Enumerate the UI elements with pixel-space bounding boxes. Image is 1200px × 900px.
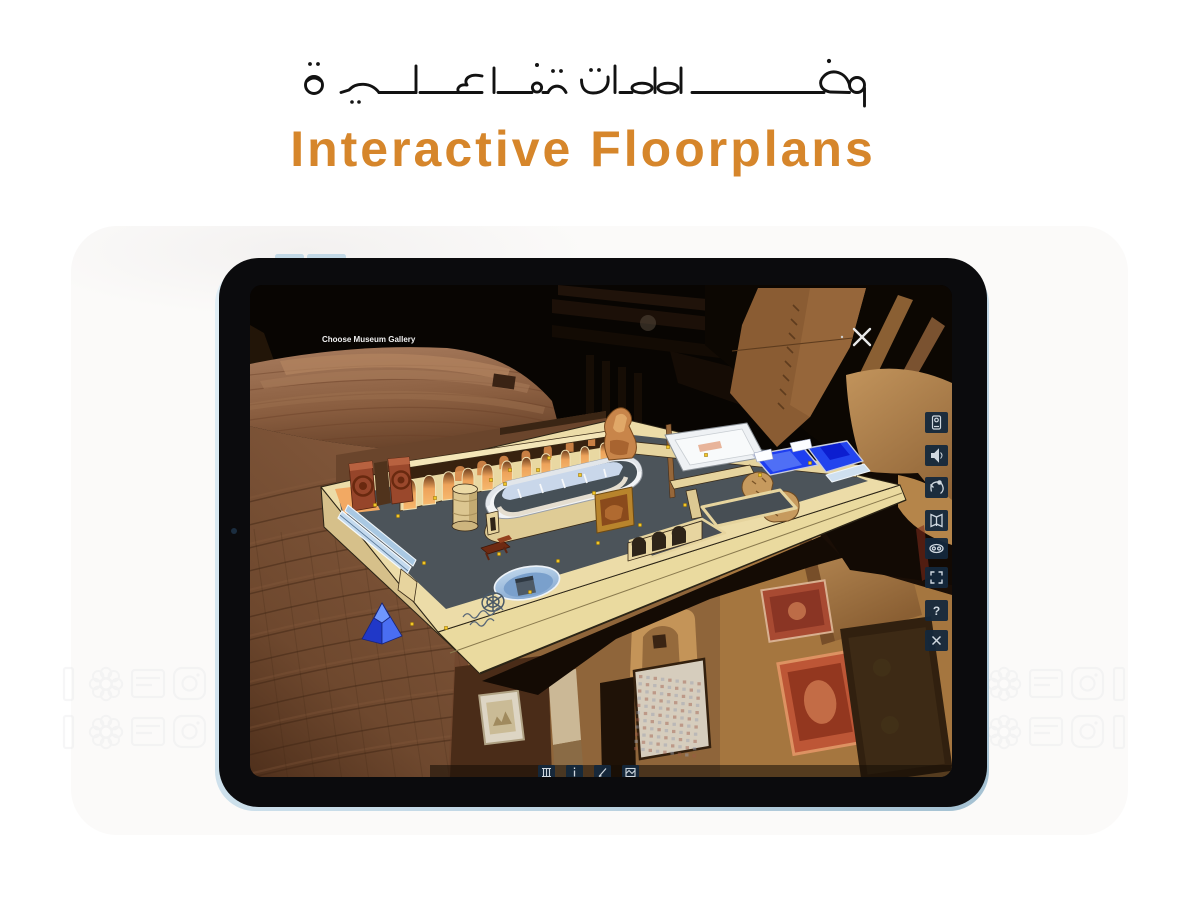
svg-text:Choose Museum Gallery: Choose Museum Gallery — [322, 335, 416, 344]
svg-text:?: ? — [933, 604, 940, 618]
